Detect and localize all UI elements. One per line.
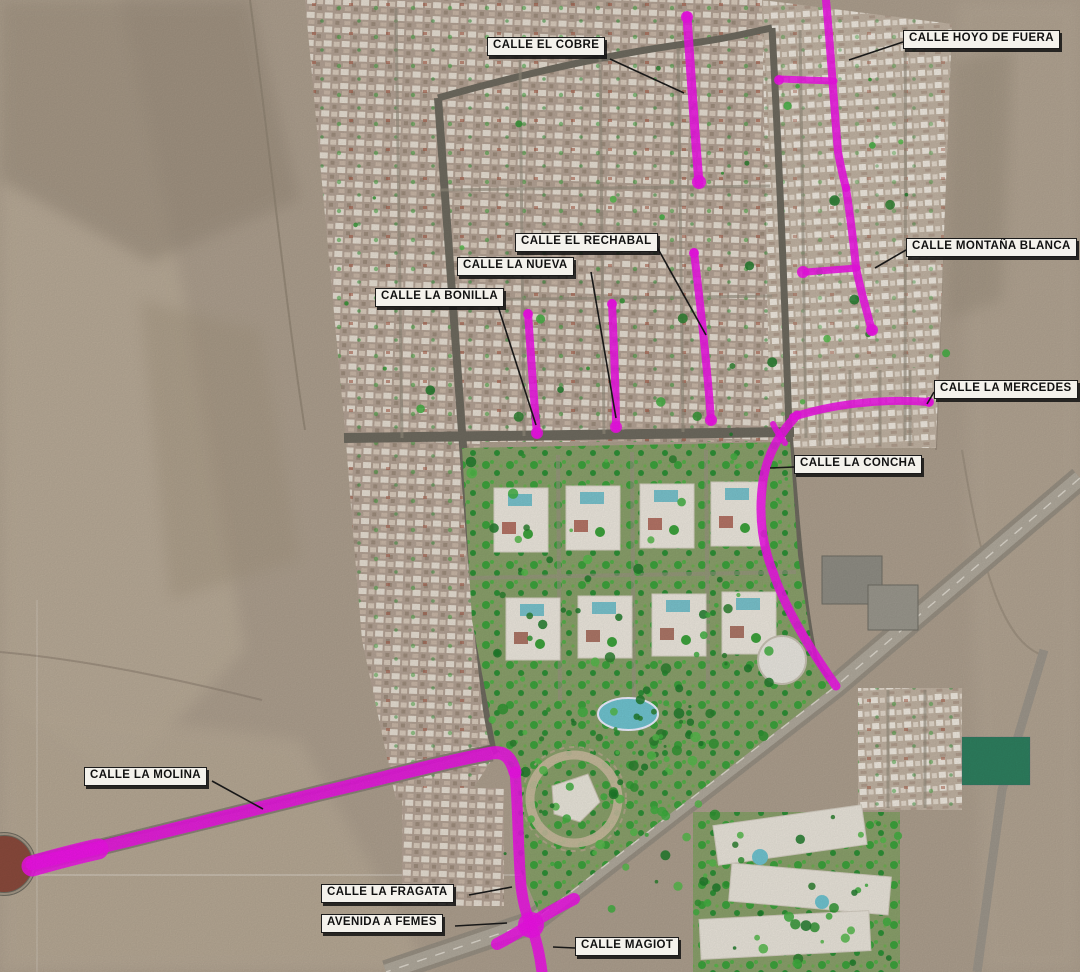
aerial-map[interactable]: CALLE EL COBRECALLE HOYO DE FUERACALLE M… [0,0,1080,972]
photo-grain [0,0,1080,972]
map-canvas [0,0,1080,972]
